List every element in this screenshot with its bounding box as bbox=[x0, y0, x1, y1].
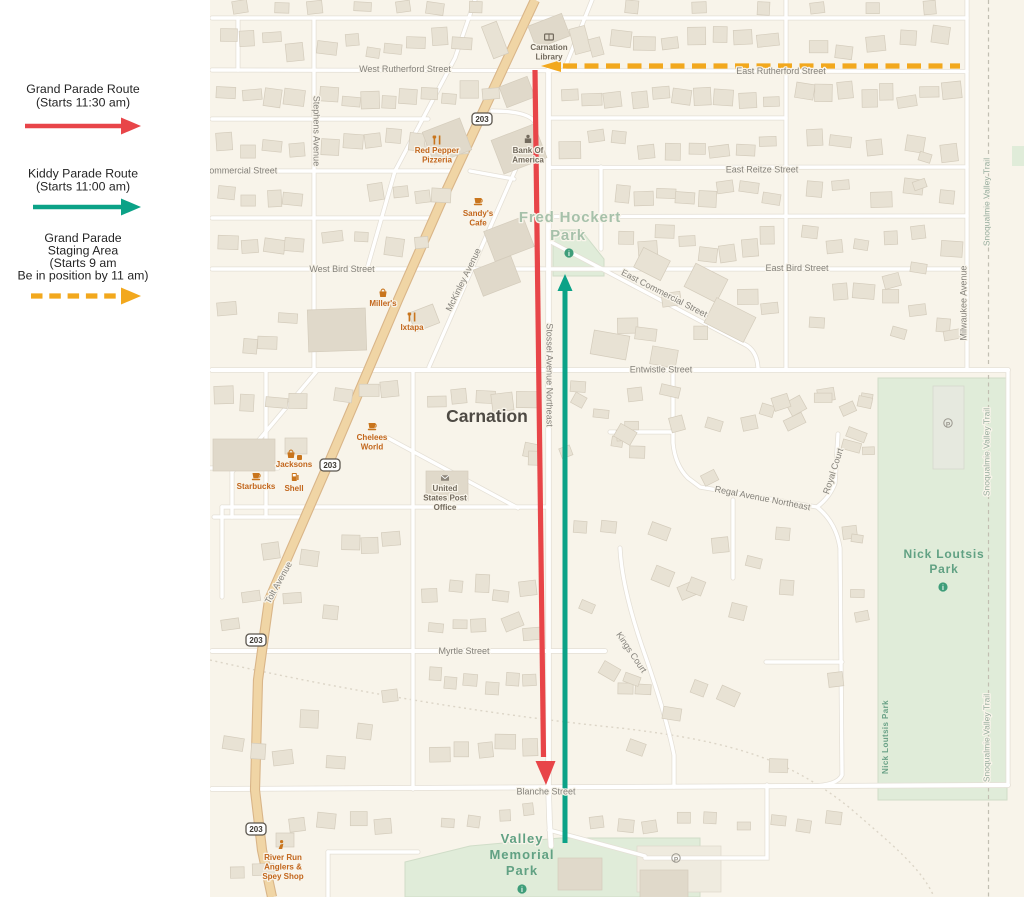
svg-text:East Reitze Street: East Reitze Street bbox=[726, 165, 799, 175]
svg-text:Pizzeria: Pizzeria bbox=[422, 156, 452, 165]
svg-text:Grand Parade Route: Grand Parade Route bbox=[26, 82, 140, 96]
svg-text:i: i bbox=[521, 887, 523, 894]
svg-text:Park: Park bbox=[929, 562, 958, 576]
svg-text:Library: Library bbox=[535, 53, 563, 62]
svg-text:Commercial Street: Commercial Street bbox=[203, 166, 278, 176]
svg-text:Red Pepper: Red Pepper bbox=[415, 146, 459, 155]
svg-text:West Rutherford Street: West Rutherford Street bbox=[359, 64, 451, 74]
svg-text:203: 203 bbox=[323, 461, 337, 470]
svg-text:Park: Park bbox=[506, 863, 538, 878]
svg-text:East Rutherford Street: East Rutherford Street bbox=[736, 66, 826, 76]
svg-text:Starbucks: Starbucks bbox=[237, 482, 276, 491]
svg-text:Myrtle Street: Myrtle Street bbox=[438, 646, 490, 656]
svg-text:P: P bbox=[946, 421, 951, 428]
svg-text:Anglers &: Anglers & bbox=[264, 863, 302, 872]
svg-text:Memorial: Memorial bbox=[489, 847, 554, 862]
svg-text:Chelees: Chelees bbox=[357, 433, 388, 442]
svg-text:(Starts 11:00 am): (Starts 11:00 am) bbox=[36, 180, 130, 194]
svg-text:States Post: States Post bbox=[423, 494, 467, 503]
svg-text:i: i bbox=[942, 585, 944, 592]
svg-text:River Run: River Run bbox=[264, 853, 302, 862]
svg-text:Fred Hockert: Fred Hockert bbox=[519, 209, 621, 226]
svg-text:World: World bbox=[361, 443, 384, 452]
svg-text:Kiddy Parade Route: Kiddy Parade Route bbox=[28, 167, 138, 181]
svg-text:203: 203 bbox=[249, 825, 263, 834]
svg-text:Stossel Avenue Northeast: Stossel Avenue Northeast bbox=[545, 323, 555, 427]
svg-text:Spey Shop: Spey Shop bbox=[262, 872, 303, 881]
svg-text:East Bird Street: East Bird Street bbox=[765, 263, 829, 273]
svg-text:Office: Office bbox=[434, 503, 457, 512]
svg-text:Carnation: Carnation bbox=[530, 43, 567, 52]
svg-text:Carnation: Carnation bbox=[446, 406, 528, 426]
svg-text:Miller's: Miller's bbox=[369, 299, 397, 308]
svg-text:Entwistle Street: Entwistle Street bbox=[630, 365, 693, 375]
svg-text:Snoqualmie Valley Trail: Snoqualmie Valley Trail bbox=[982, 408, 992, 496]
svg-text:Nick Loutsis: Nick Loutsis bbox=[904, 547, 985, 561]
svg-text:Park: Park bbox=[550, 227, 586, 244]
svg-text:203: 203 bbox=[249, 636, 263, 645]
svg-text:Valley: Valley bbox=[501, 831, 544, 846]
svg-text:America: America bbox=[512, 156, 544, 165]
svg-text:Snoqualmie Valley Trail: Snoqualmie Valley Trail bbox=[982, 694, 992, 782]
svg-text:Jacksons: Jacksons bbox=[276, 460, 313, 469]
svg-text:Stephens Avenue: Stephens Avenue bbox=[312, 96, 322, 166]
svg-text:Bank Of: Bank Of bbox=[513, 146, 544, 155]
svg-text:West Bird Street: West Bird Street bbox=[309, 264, 375, 274]
svg-text:Snoqualmie Valley Trail: Snoqualmie Valley Trail bbox=[982, 158, 992, 246]
svg-text:Nick Loutsis Park: Nick Loutsis Park bbox=[881, 700, 890, 774]
svg-text:Milwaukee Avenue: Milwaukee Avenue bbox=[959, 266, 969, 341]
svg-text:Shell: Shell bbox=[284, 484, 303, 493]
svg-text:Ixtapa: Ixtapa bbox=[400, 323, 424, 332]
svg-text:United: United bbox=[433, 484, 458, 493]
svg-text:(Starts 11:30 am): (Starts 11:30 am) bbox=[36, 96, 130, 110]
svg-text:Sandy's: Sandy's bbox=[463, 209, 494, 218]
svg-text:i: i bbox=[568, 251, 570, 258]
svg-text:Cafe: Cafe bbox=[469, 219, 487, 228]
svg-text:P: P bbox=[674, 856, 679, 863]
svg-text:Blanche Street: Blanche Street bbox=[516, 787, 576, 797]
svg-text:203: 203 bbox=[475, 115, 489, 124]
svg-text:Be in position by 11 am): Be in position by 11 am) bbox=[17, 269, 148, 283]
